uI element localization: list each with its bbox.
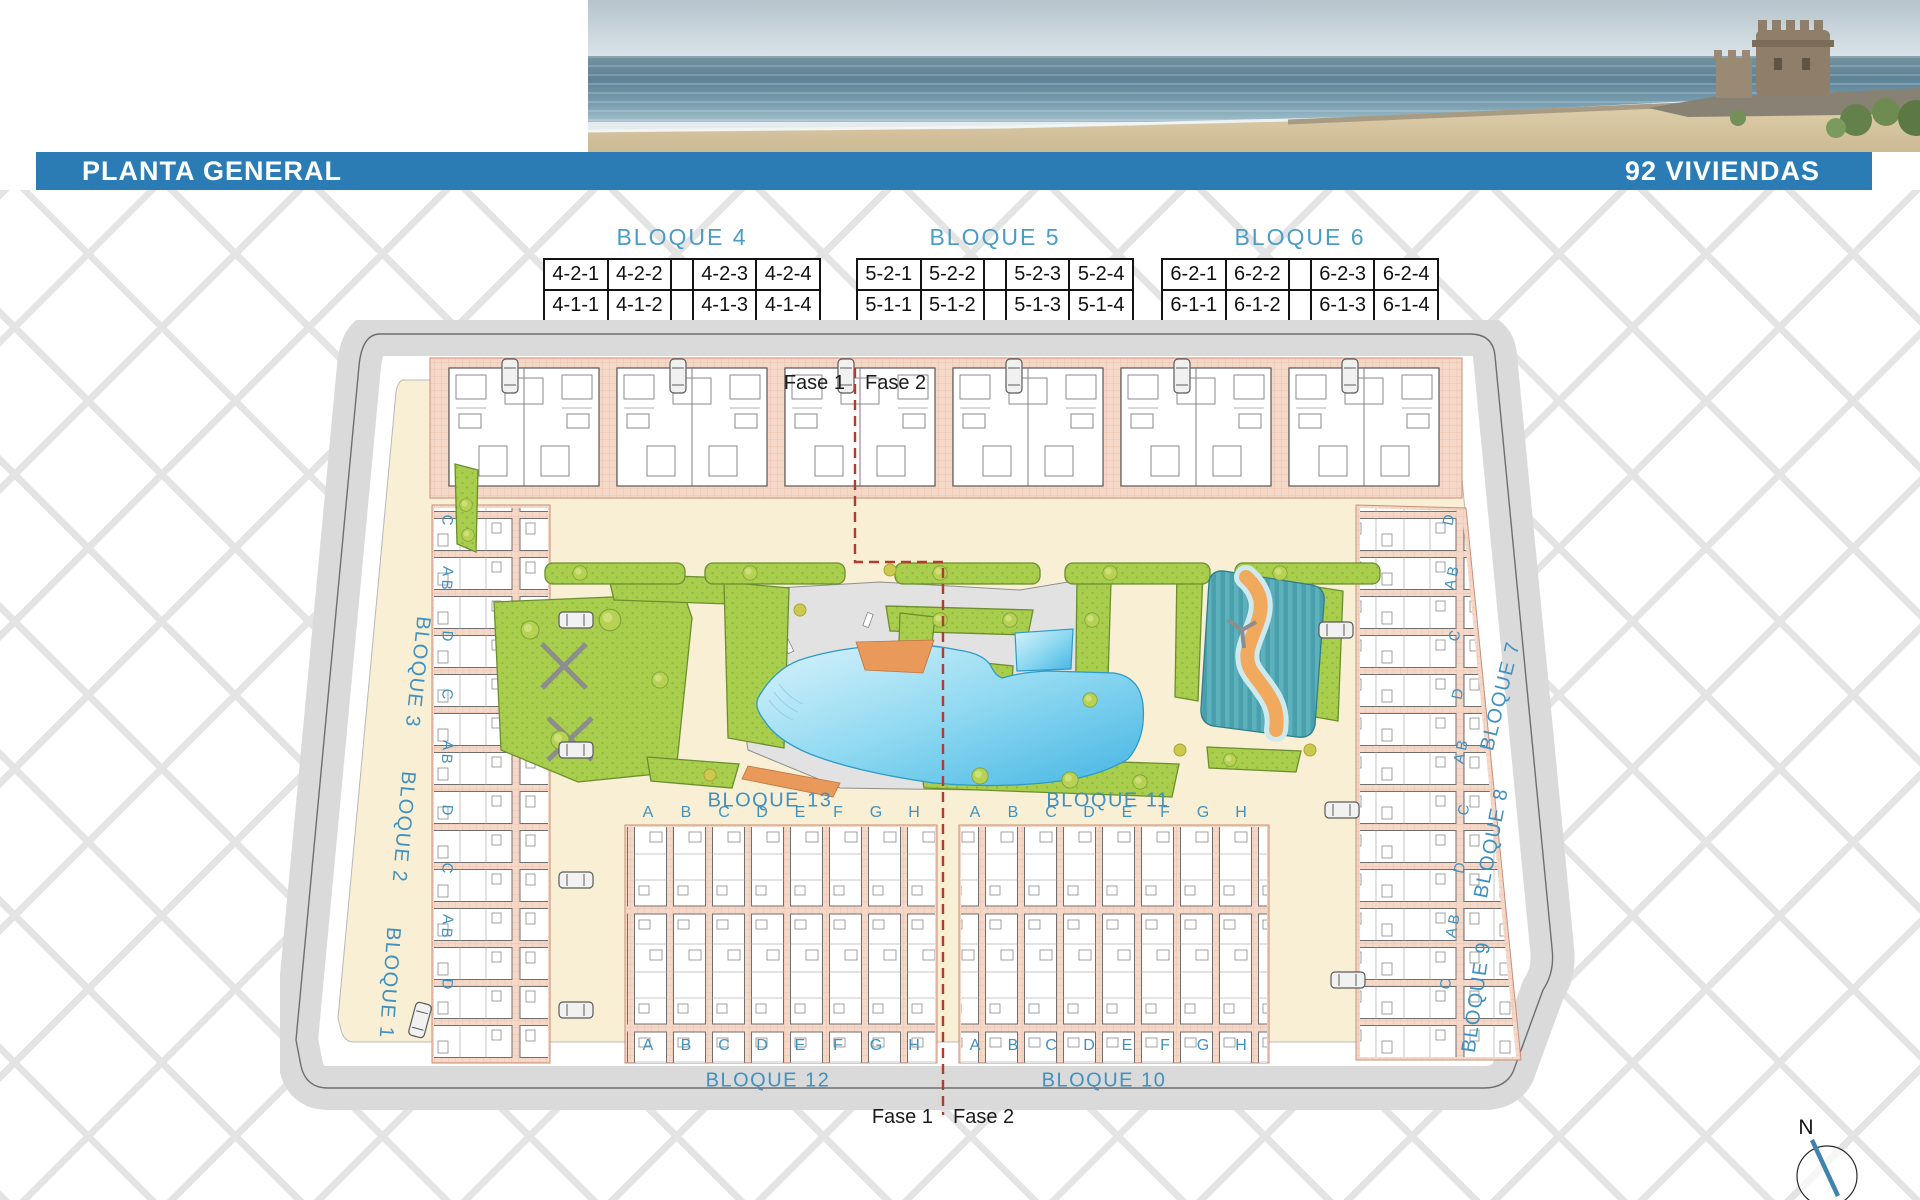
unit-letter: B xyxy=(681,1037,692,1055)
unit-letter: D xyxy=(756,804,768,822)
unit-letter: G xyxy=(870,1037,882,1055)
unit-letter: A xyxy=(970,804,981,822)
fase-1-label: Fase 1 xyxy=(784,372,845,395)
fase-1-label: Fase 1 xyxy=(872,1106,933,1129)
side-letter: D xyxy=(438,978,456,990)
table-title-bloque-5: BLOQUE 5 xyxy=(856,224,1134,251)
unit-cell: 5-1-1 xyxy=(857,290,921,321)
unit-letter: E xyxy=(795,1037,806,1055)
spacer-cell xyxy=(1289,259,1311,290)
play-area xyxy=(1201,571,1324,737)
unit-letter: C xyxy=(1045,1037,1057,1055)
phase-labels-bottom: Fase 1 Fase 2 xyxy=(872,1106,1014,1129)
unit-cell: 6-2-4 xyxy=(1374,259,1438,290)
unit-letter: E xyxy=(1122,804,1133,822)
unit-cell: 6-2-2 xyxy=(1226,259,1290,290)
unit-letter: H xyxy=(908,1037,920,1055)
unit-letter: F xyxy=(1160,1037,1170,1055)
unit-cell: 6-2-3 xyxy=(1311,259,1375,290)
spacer-cell xyxy=(1289,290,1311,321)
unit-cell: 4-2-4 xyxy=(756,259,820,290)
plan-label-bloque-12: BLOQUE 12 xyxy=(706,1070,831,1093)
unit-cell: 6-1-1 xyxy=(1162,290,1226,321)
unit-cell: 6-1-3 xyxy=(1311,290,1375,321)
phase-labels-top: Fase 1 Fase 2 xyxy=(784,372,926,395)
unit-letter: E xyxy=(1122,1037,1133,1055)
unit-cell: 6-1-2 xyxy=(1226,290,1290,321)
unit-letter: B xyxy=(681,804,692,822)
site-plan-drawing xyxy=(280,320,1575,1115)
unit-letter: H xyxy=(1235,804,1247,822)
side-letter: D xyxy=(438,630,456,642)
unit-letter: D xyxy=(1083,1037,1095,1055)
units-count: 92 VIVIENDAS xyxy=(1625,156,1820,187)
side-letter: A B xyxy=(438,566,457,590)
unit-letter: D xyxy=(1083,804,1095,822)
spacer-cell xyxy=(984,259,1006,290)
side-letter: A B xyxy=(438,740,457,764)
unit-cell: 4-2-1 xyxy=(544,259,608,290)
side-letter: C xyxy=(438,688,456,700)
unit-cell: 4-1-4 xyxy=(756,290,820,321)
unit-letter: E xyxy=(795,804,806,822)
unit-letter: F xyxy=(1160,804,1170,822)
unit-cell: 5-2-1 xyxy=(857,259,921,290)
table-title-bloque-6: BLOQUE 6 xyxy=(1161,224,1439,251)
unit-cell: 5-1-2 xyxy=(921,290,985,321)
unit-letter: C xyxy=(1045,804,1057,822)
side-letter: C xyxy=(438,514,456,526)
unit-letter: D xyxy=(756,1037,768,1055)
unit-letter: G xyxy=(1197,804,1209,822)
unit-letter: B xyxy=(1008,804,1019,822)
page-title: PLANTA GENERAL xyxy=(82,156,342,187)
side-letter: C xyxy=(438,862,456,874)
unit-letter: H xyxy=(908,804,920,822)
castle-tower xyxy=(1714,20,1834,98)
plan-label-bloque-10: BLOQUE 10 xyxy=(1042,1070,1167,1093)
unit-letter: F xyxy=(833,1037,843,1055)
unit-cell: 5-1-3 xyxy=(1006,290,1070,321)
photo-beach-drawing xyxy=(588,0,1920,152)
unit-cell: 4-2-2 xyxy=(608,259,672,290)
unit-letter: A xyxy=(643,804,654,822)
unit-cell: 6-2-1 xyxy=(1162,259,1226,290)
small-pool xyxy=(1015,629,1073,671)
unit-cell: 5-2-3 xyxy=(1006,259,1070,290)
unit-letter: B xyxy=(1008,1037,1019,1055)
title-bar: PLANTA GENERAL 92 VIVIENDAS xyxy=(36,152,1872,190)
spacer-cell xyxy=(984,290,1006,321)
header-photo xyxy=(588,0,1920,152)
unit-letter: C xyxy=(718,1037,730,1055)
fase-2-label: Fase 2 xyxy=(865,372,926,395)
unit-cell: 6-1-4 xyxy=(1374,290,1438,321)
unit-cell: 4-1-3 xyxy=(693,290,757,321)
unit-cell: 4-2-3 xyxy=(693,259,757,290)
unit-letter: G xyxy=(870,804,882,822)
unit-letter: C xyxy=(718,804,730,822)
unit-cell: 5-2-4 xyxy=(1069,259,1133,290)
unit-cell: 5-2-2 xyxy=(921,259,985,290)
unit-cell: 5-1-4 xyxy=(1069,290,1133,321)
spacer-cell xyxy=(671,290,693,321)
unit-letter: A xyxy=(643,1037,654,1055)
page: PLANTA GENERAL 92 VIVIENDAS BLOQUE 4 4-2… xyxy=(0,0,1920,1200)
unit-cell: 4-1-1 xyxy=(544,290,608,321)
unit-letter: G xyxy=(1197,1037,1209,1055)
unit-letter: A xyxy=(970,1037,981,1055)
unit-cell: 4-1-2 xyxy=(608,290,672,321)
fase-2-label: Fase 2 xyxy=(953,1106,1014,1129)
plan-label-bloque-11: BLOQUE 11 xyxy=(1046,790,1169,813)
side-letter: A B xyxy=(438,914,457,938)
table-title-bloque-4: BLOQUE 4 xyxy=(543,224,821,251)
compass-icon xyxy=(1770,1118,1870,1200)
unit-letter: H xyxy=(1235,1037,1247,1055)
side-letter: D xyxy=(438,804,456,816)
spacer-cell xyxy=(671,259,693,290)
unit-letter: F xyxy=(833,804,843,822)
